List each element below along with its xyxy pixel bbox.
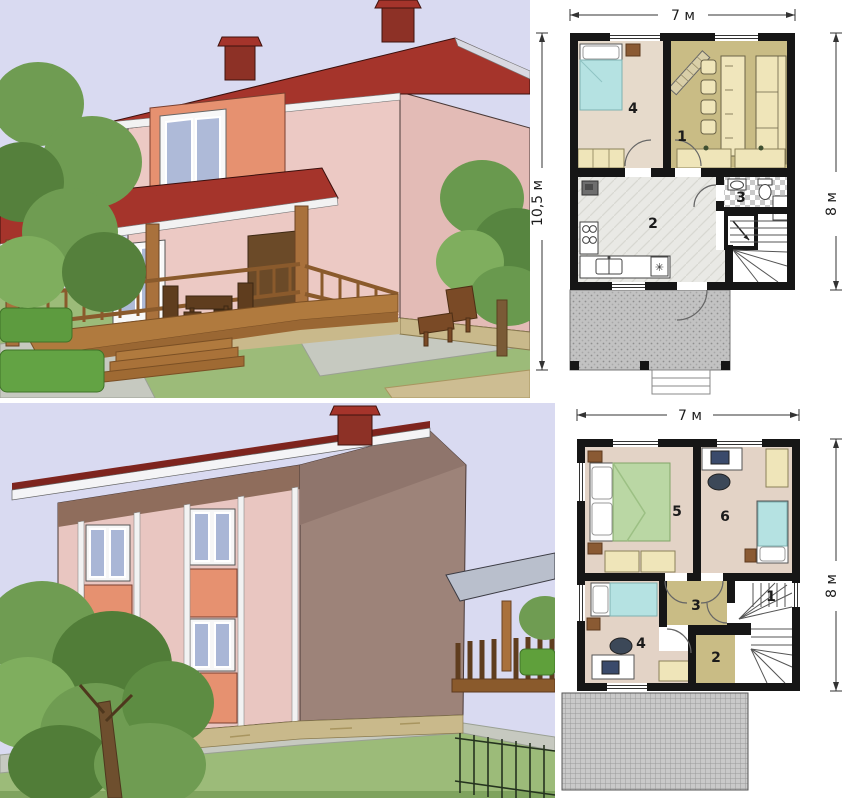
dresser-room4 xyxy=(659,661,691,681)
dining-table xyxy=(721,56,745,156)
wardrobe xyxy=(578,149,624,168)
boiler-table: ✳ xyxy=(651,257,668,276)
bed-double xyxy=(580,44,622,110)
nightstand-room6 xyxy=(745,549,756,562)
desk-chair xyxy=(708,474,730,490)
stair-wall xyxy=(725,245,733,282)
room2-label: 2 xyxy=(648,216,658,232)
accent-panel xyxy=(188,569,237,617)
plant-2 xyxy=(759,146,764,151)
nightstand xyxy=(588,451,602,462)
room1-label: 1 xyxy=(677,129,687,145)
bed-single-teal-room4 xyxy=(591,583,657,616)
room1-label: 1 xyxy=(766,589,776,605)
terrace xyxy=(570,290,730,370)
dim-left-label: 10,5 м xyxy=(530,180,546,226)
room5-label: 5 xyxy=(672,504,682,520)
floor-plan-first: ✳ xyxy=(530,0,850,403)
bed-double-green xyxy=(590,463,670,541)
fridge-unit xyxy=(582,181,598,195)
boiler-symbol: ✳ xyxy=(655,261,664,274)
hedge-box-2 xyxy=(0,350,104,392)
chimney xyxy=(330,406,380,445)
wardrobe-room6 xyxy=(766,449,788,487)
porch-skirt xyxy=(452,679,555,692)
bed-single-teal-room6 xyxy=(757,501,788,563)
render-rear-view xyxy=(0,403,555,798)
bath-sink xyxy=(728,179,746,190)
house-project-collage: ✳ xyxy=(0,0,850,798)
desk-chair xyxy=(610,638,632,654)
dim-top-label: 7 м xyxy=(678,408,702,424)
render-front-view xyxy=(0,0,530,398)
nightstand-2 xyxy=(588,543,602,554)
toilet xyxy=(758,179,772,200)
room4-label: 4 xyxy=(636,636,646,652)
plant xyxy=(704,146,709,151)
room3-label: 3 xyxy=(736,190,746,206)
chimney-2 xyxy=(375,0,421,42)
shower xyxy=(726,214,756,248)
terrace-steps xyxy=(652,370,710,394)
room4-label: 4 xyxy=(628,101,638,117)
dim-top-label: 7 м xyxy=(671,8,695,24)
hedge-box xyxy=(0,308,72,342)
hedge-box xyxy=(520,649,555,675)
sideboards xyxy=(677,149,785,168)
dim-right-label: 8 м xyxy=(824,192,840,216)
nightstand-room4 xyxy=(587,618,600,630)
room3-label: 3 xyxy=(691,598,701,614)
floor-plan-second: 1 2 3 4 5 6 7 м 8 м xyxy=(555,403,850,798)
terrace-roof-hatched xyxy=(562,693,748,790)
stove xyxy=(580,222,598,254)
chimney xyxy=(218,37,262,80)
nightstand xyxy=(626,44,640,56)
room2-label: 2 xyxy=(711,650,721,666)
room6-label: 6 xyxy=(720,509,730,525)
dim-right-label: 8 м xyxy=(824,574,840,598)
porch-post xyxy=(502,601,511,671)
